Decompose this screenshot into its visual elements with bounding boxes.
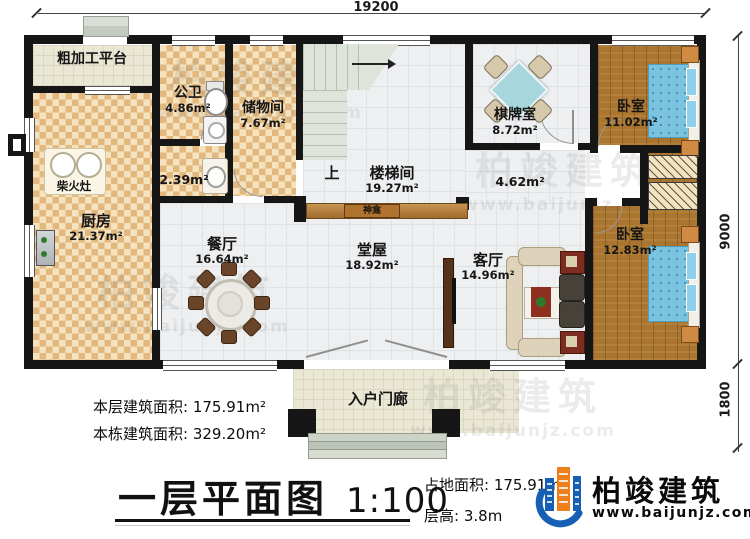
bedroom-top-name: 卧室 [592, 100, 670, 116]
stairs-arrow-head [388, 59, 396, 69]
window [612, 35, 694, 46]
wall [24, 152, 33, 225]
end-table-top [566, 256, 577, 267]
brand-url: www.baijunjz.com [592, 505, 750, 521]
story-height-label: 层高: [424, 507, 459, 525]
stairs-upper-run [303, 44, 369, 90]
stairwell-label: 楼梯间 19.27m² [354, 165, 430, 195]
sliding-door [152, 288, 162, 330]
floor-plan-page: 19200 9000 1800 柏竣建筑 www.baijunjz.com 柏竣… [0, 0, 750, 539]
hall-name: 堂屋 [332, 242, 412, 259]
end-table-top [566, 336, 577, 347]
chessroom-name: 棋牌室 [470, 108, 560, 124]
logo-building-left [545, 478, 554, 511]
total-area-label: 本栋建筑面积: [93, 425, 188, 443]
wok-burner [50, 152, 76, 178]
bed [648, 246, 690, 322]
corridor-area: 4.62m² [486, 175, 554, 189]
washer-drum [208, 122, 225, 139]
shrine-label-box: 神龛 [344, 204, 400, 218]
nightstand [681, 226, 699, 243]
burner-dot [41, 251, 47, 257]
window [163, 360, 277, 371]
brand-name: 柏竣建筑 [592, 468, 724, 510]
tv [452, 278, 456, 324]
wok-burner [76, 152, 102, 178]
porch-name: 入户门廊 [316, 391, 440, 408]
kitchen-name: 厨房 [56, 213, 136, 230]
utility-label: 2.39m² [150, 173, 218, 187]
living-label: 客厅 14.96m² [448, 252, 528, 282]
wall [277, 360, 304, 369]
wall [640, 150, 648, 224]
stairwell-area: 19.27m² [354, 182, 430, 195]
kitchen-area: 21.37m² [56, 230, 136, 243]
platform-label: 粗加工平台 [40, 52, 144, 68]
bathroom-area: 4.86m² [150, 102, 226, 115]
nightstand [681, 46, 699, 63]
sofa-seat [518, 338, 566, 357]
wall [449, 360, 490, 369]
story-height-value: 3.8m [464, 507, 502, 525]
window [490, 360, 565, 371]
wall [130, 86, 152, 93]
armchair [559, 301, 585, 328]
dining-label: 餐厅 16.64m² [182, 236, 262, 266]
brand-logo-icon [532, 462, 588, 528]
storage-area: 7.67m² [224, 117, 302, 130]
platform-name: 粗加工平台 [40, 52, 144, 68]
stairs-direction-arrow [352, 63, 388, 65]
wall [622, 198, 640, 206]
kitchen-label: 厨房 21.37m² [56, 213, 136, 243]
wall [152, 196, 232, 203]
storage-label: 储物间 7.67m² [224, 101, 302, 130]
hall-area: 18.92m² [332, 259, 412, 272]
wall [24, 360, 163, 369]
window [85, 86, 130, 95]
entry-steps [83, 16, 129, 37]
corridor-label: 4.62m² [486, 175, 554, 189]
dimension-right-lower-value: 1800 [719, 375, 734, 425]
bathroom-name: 公卫 [150, 86, 226, 102]
wall [590, 35, 598, 153]
bedroom-top-area: 11.02m² [592, 116, 670, 129]
stairs-lower-run [303, 90, 347, 160]
story-height-line: 层高: 3.8m [424, 505, 502, 526]
dining-table-center [217, 291, 243, 317]
wall [24, 277, 33, 369]
pillow [686, 284, 697, 312]
wall [578, 143, 590, 150]
nightstand [681, 326, 699, 343]
wall [152, 203, 160, 288]
wall [33, 86, 85, 93]
dining-name: 餐厅 [182, 236, 262, 253]
living-area: 14.96m² [448, 269, 528, 282]
shrine-label: 神龛 [363, 206, 381, 216]
stairs-up: 上 [318, 165, 346, 182]
wardrobe [648, 182, 698, 210]
utility-area: 2.39m² [150, 173, 218, 187]
bedroom-top-label: 卧室 11.02m² [592, 100, 670, 129]
pillow [686, 252, 697, 280]
hall-label: 堂屋 18.92m² [332, 242, 412, 272]
wall [24, 35, 33, 118]
gas-stove [36, 230, 55, 266]
wall [152, 330, 160, 369]
wall [590, 145, 598, 153]
chessroom-label: 棋牌室 8.72m² [470, 108, 560, 137]
storage-name: 储物间 [224, 101, 302, 117]
chair [188, 296, 204, 310]
wall [283, 35, 343, 44]
plant [536, 297, 546, 307]
window [250, 35, 283, 46]
dining-area: 16.64m² [182, 253, 262, 266]
site-area-label: 占地面积: [424, 476, 489, 494]
total-area-value: 329.20m² [193, 425, 266, 443]
pillow [686, 100, 697, 128]
dimension-right-upper-value: 9000 [719, 202, 734, 262]
drawing-title-line: 一层平面图1:100 [118, 468, 449, 523]
bedroom-bottom-label: 卧室 12.83m² [590, 228, 670, 257]
dimension-top-value: 19200 [336, 0, 416, 15]
wall [127, 35, 172, 44]
wall [465, 143, 540, 150]
total-area-line: 本栋建筑面积: 329.20m² [93, 423, 266, 444]
floor-area-label: 本层建筑面积: [93, 398, 188, 416]
bedroom-bottom-name: 卧室 [590, 228, 670, 244]
chair [221, 330, 237, 344]
living-name: 客厅 [448, 252, 528, 269]
wall [294, 196, 306, 222]
stairs-up-label: 上 [318, 165, 346, 182]
wall [585, 198, 593, 369]
bathroom-label: 公卫 4.86m² [150, 86, 226, 115]
chessroom-area: 8.72m² [470, 124, 560, 137]
door-leaf-chessroom [572, 110, 574, 144]
wall [430, 35, 612, 44]
pillow [686, 68, 697, 96]
chair [254, 296, 270, 310]
window [172, 35, 215, 46]
stairwell-name: 楼梯间 [354, 165, 430, 182]
drawing-title: 一层平面图 [118, 477, 328, 521]
dimension-line-right [738, 36, 739, 452]
wall [160, 139, 200, 146]
logo-building-right [573, 476, 581, 511]
porch-step [308, 449, 447, 459]
wardrobe [648, 155, 698, 179]
porch-label: 入户门廊 [316, 391, 440, 408]
bedroom-bottom-area: 12.83m² [590, 244, 670, 257]
window [24, 225, 35, 277]
stove-label: 柴火灶 [57, 179, 92, 193]
title-underline [115, 519, 410, 522]
burner-dot [41, 237, 47, 243]
title-underline-shadow [115, 525, 410, 526]
floor-area-line: 本层建筑面积: 175.91m² [93, 396, 266, 417]
chimney [8, 134, 26, 156]
armchair [559, 274, 585, 301]
floor-area-value: 175.91m² [193, 398, 266, 416]
